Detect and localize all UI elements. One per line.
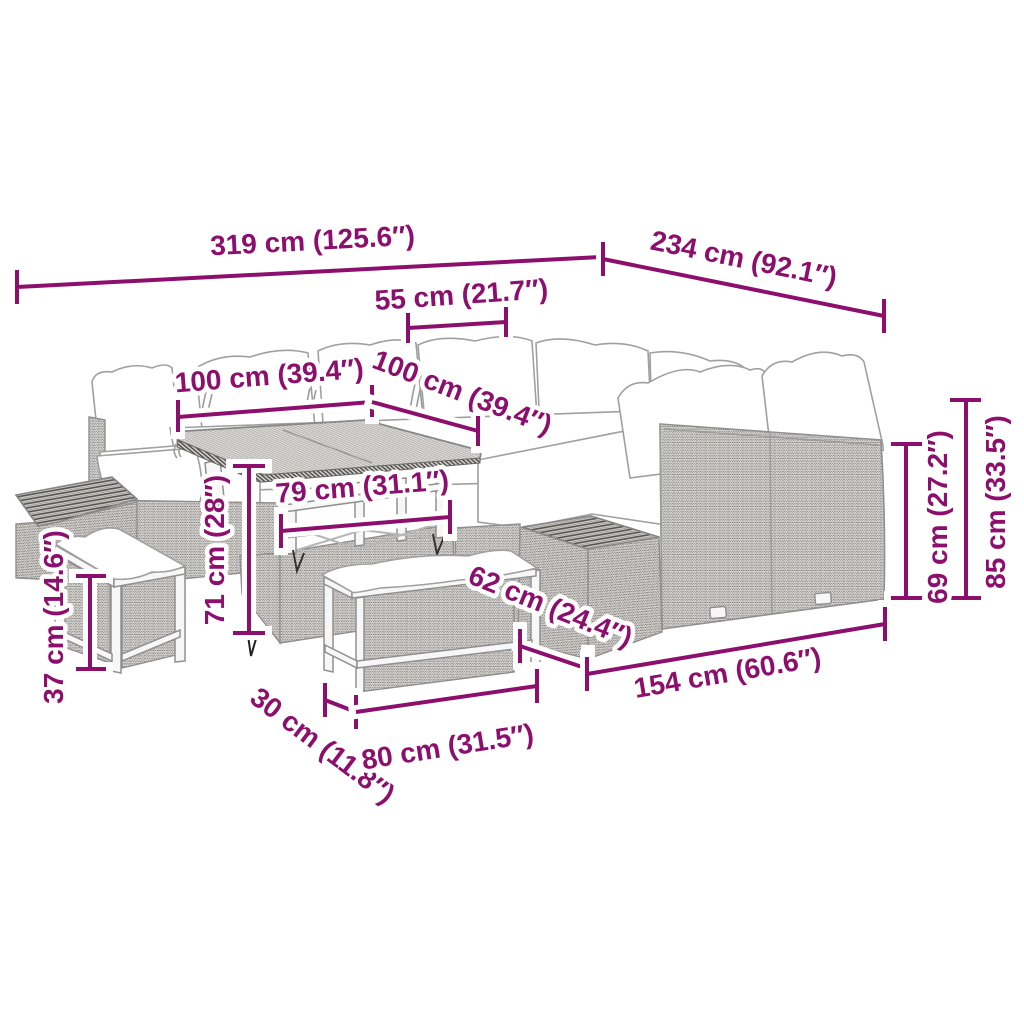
svg-text:71 cm (28″): 71 cm (28″) [199,475,230,625]
svg-text:37 cm (14.6″): 37 cm (14.6″) [38,530,69,704]
svg-text:69 cm (27.2″): 69 cm (27.2″) [922,430,953,604]
svg-text:85 cm (33.5″): 85 cm (33.5″) [980,415,1011,589]
